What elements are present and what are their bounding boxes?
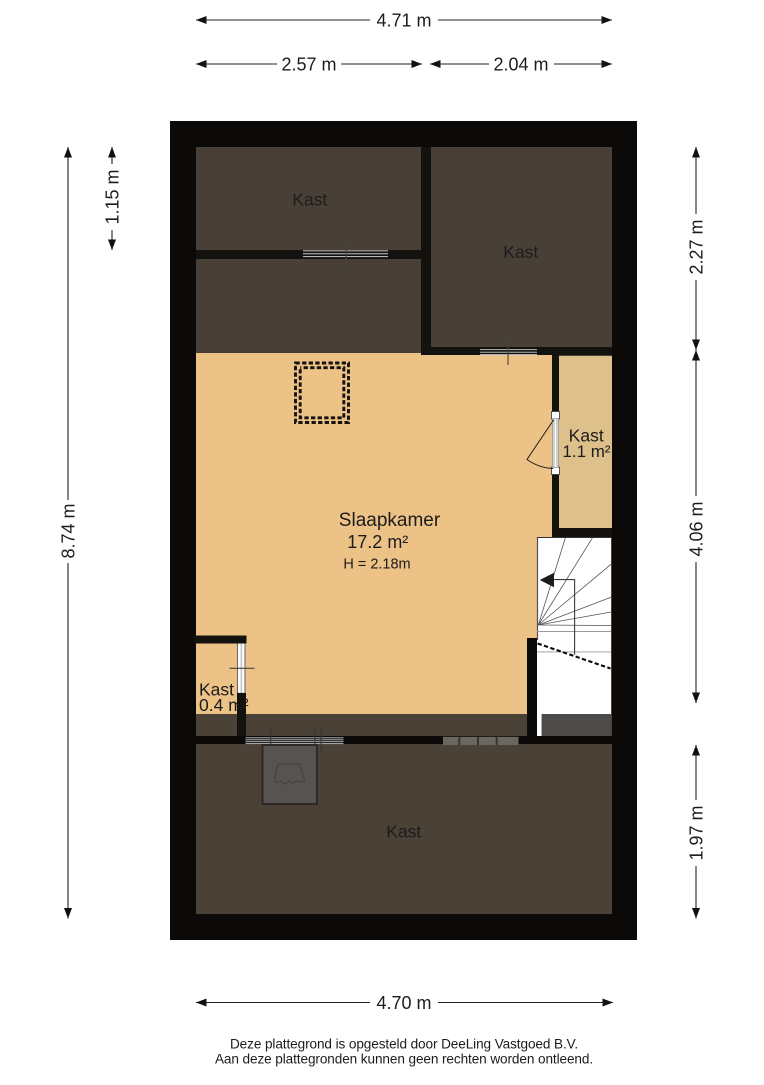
svg-text:4.70 m: 4.70 m bbox=[376, 993, 431, 1013]
svg-text:4.71 m: 4.71 m bbox=[376, 11, 431, 31]
svg-text:4.06 m: 4.06 m bbox=[687, 501, 707, 556]
svg-text:2.04 m: 2.04 m bbox=[493, 55, 548, 75]
svg-text:2.27 m: 2.27 m bbox=[687, 219, 707, 274]
svg-text:Deze plattegrond is opgesteld: Deze plattegrond is opgesteld door DeeLi… bbox=[230, 1036, 578, 1051]
svg-text:1.97 m: 1.97 m bbox=[687, 805, 707, 860]
svg-text:H = 2.18m: H = 2.18m bbox=[343, 556, 410, 572]
svg-text:Kast: Kast bbox=[386, 822, 421, 842]
svg-text:Kast: Kast bbox=[503, 242, 538, 262]
svg-text:Kast: Kast bbox=[292, 190, 327, 210]
svg-text:1.1 m²: 1.1 m² bbox=[562, 442, 611, 461]
svg-text:1.15 m: 1.15 m bbox=[103, 169, 123, 224]
svg-text:8.74 m: 8.74 m bbox=[59, 503, 79, 558]
svg-text:Aan deze plattegronden kunnen: Aan deze plattegronden kunnen geen recht… bbox=[215, 1052, 593, 1067]
svg-text:2.57 m: 2.57 m bbox=[281, 55, 336, 75]
svg-text:17.2 m²: 17.2 m² bbox=[347, 532, 408, 552]
svg-text:Slaapkamer: Slaapkamer bbox=[339, 510, 441, 531]
